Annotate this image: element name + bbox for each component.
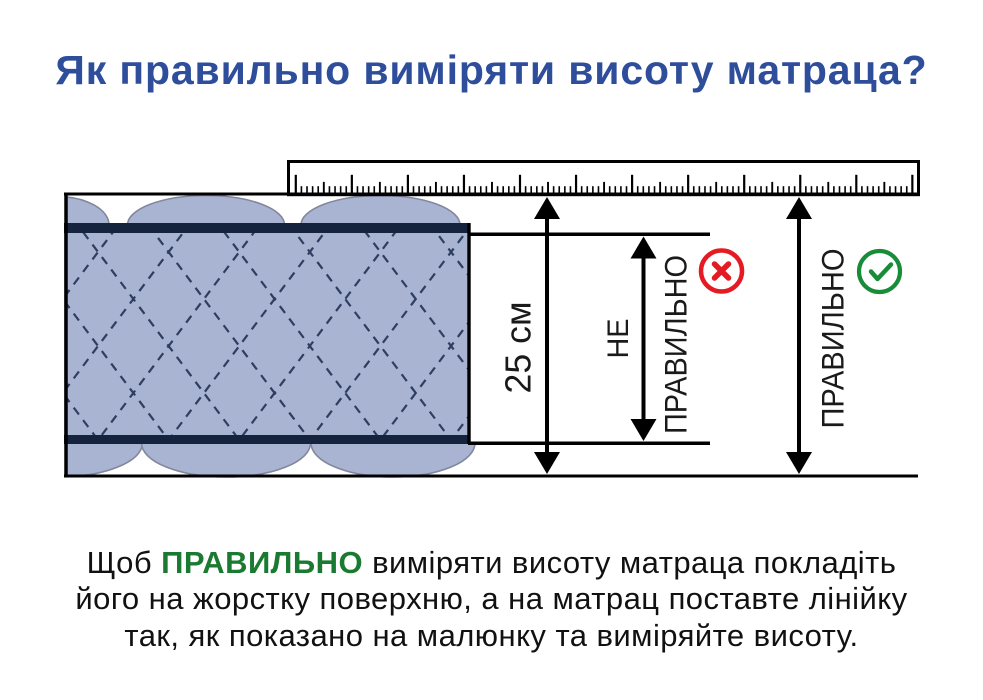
svg-text:НЕ: НЕ	[602, 319, 635, 359]
svg-text:ПРАВИЛЬНО: ПРАВИЛЬНО	[815, 249, 851, 429]
svg-text:ПРАВИЛЬНО: ПРАВИЛЬНО	[658, 255, 694, 434]
svg-text:25 см: 25 см	[498, 302, 539, 394]
